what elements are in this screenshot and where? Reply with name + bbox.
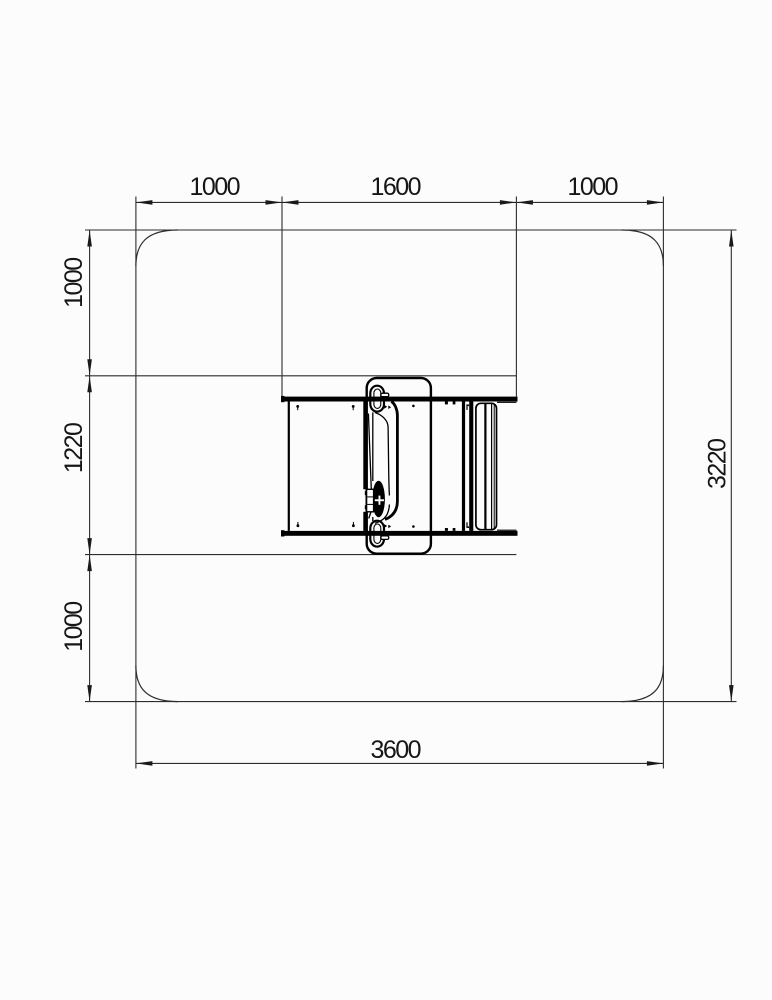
- svg-text:1000: 1000: [190, 173, 241, 201]
- svg-text:1000: 1000: [568, 173, 619, 201]
- svg-text:1220: 1220: [60, 422, 88, 473]
- svg-text:1000: 1000: [60, 601, 88, 652]
- svg-text:3220: 3220: [704, 438, 732, 489]
- svg-text:1000: 1000: [60, 257, 88, 308]
- svg-text:3600: 3600: [371, 736, 422, 764]
- svg-text:1600: 1600: [371, 173, 422, 201]
